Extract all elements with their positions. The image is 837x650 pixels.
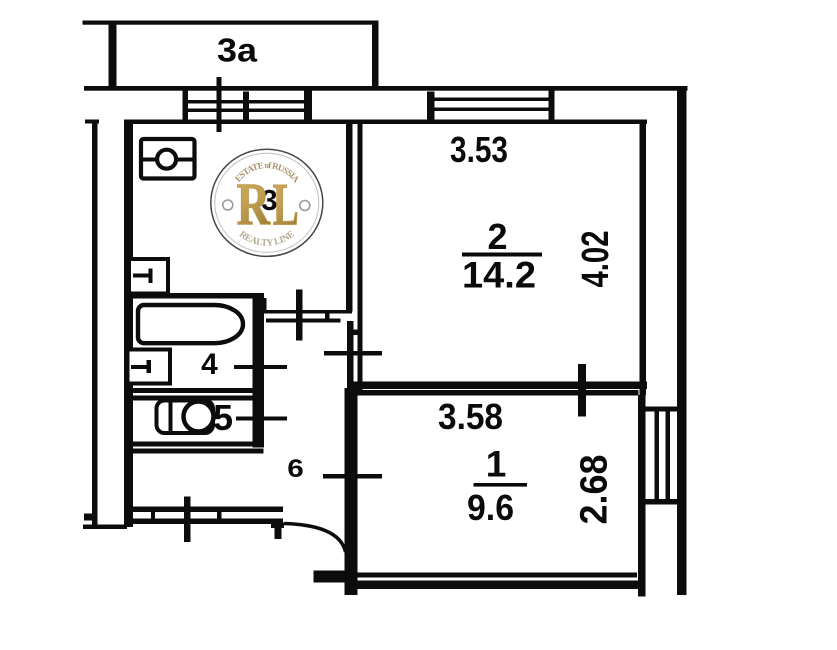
svg-text:2.68: 2.68 bbox=[574, 455, 616, 525]
svg-text:3.58: 3.58 bbox=[438, 396, 503, 437]
svg-text:2: 2 bbox=[487, 216, 507, 257]
svg-text:5: 5 bbox=[213, 397, 233, 438]
svg-text:3a: 3a bbox=[217, 32, 258, 69]
svg-text:14.2: 14.2 bbox=[462, 255, 536, 296]
svg-text:L: L bbox=[273, 172, 299, 238]
svg-text:1: 1 bbox=[486, 444, 507, 485]
svg-text:6: 6 bbox=[287, 455, 304, 483]
svg-text:3.53: 3.53 bbox=[450, 129, 508, 170]
svg-text:R: R bbox=[237, 172, 271, 238]
svg-text:4: 4 bbox=[201, 348, 218, 381]
svg-text:4.02: 4.02 bbox=[575, 231, 617, 288]
svg-text:9.6: 9.6 bbox=[467, 487, 514, 528]
